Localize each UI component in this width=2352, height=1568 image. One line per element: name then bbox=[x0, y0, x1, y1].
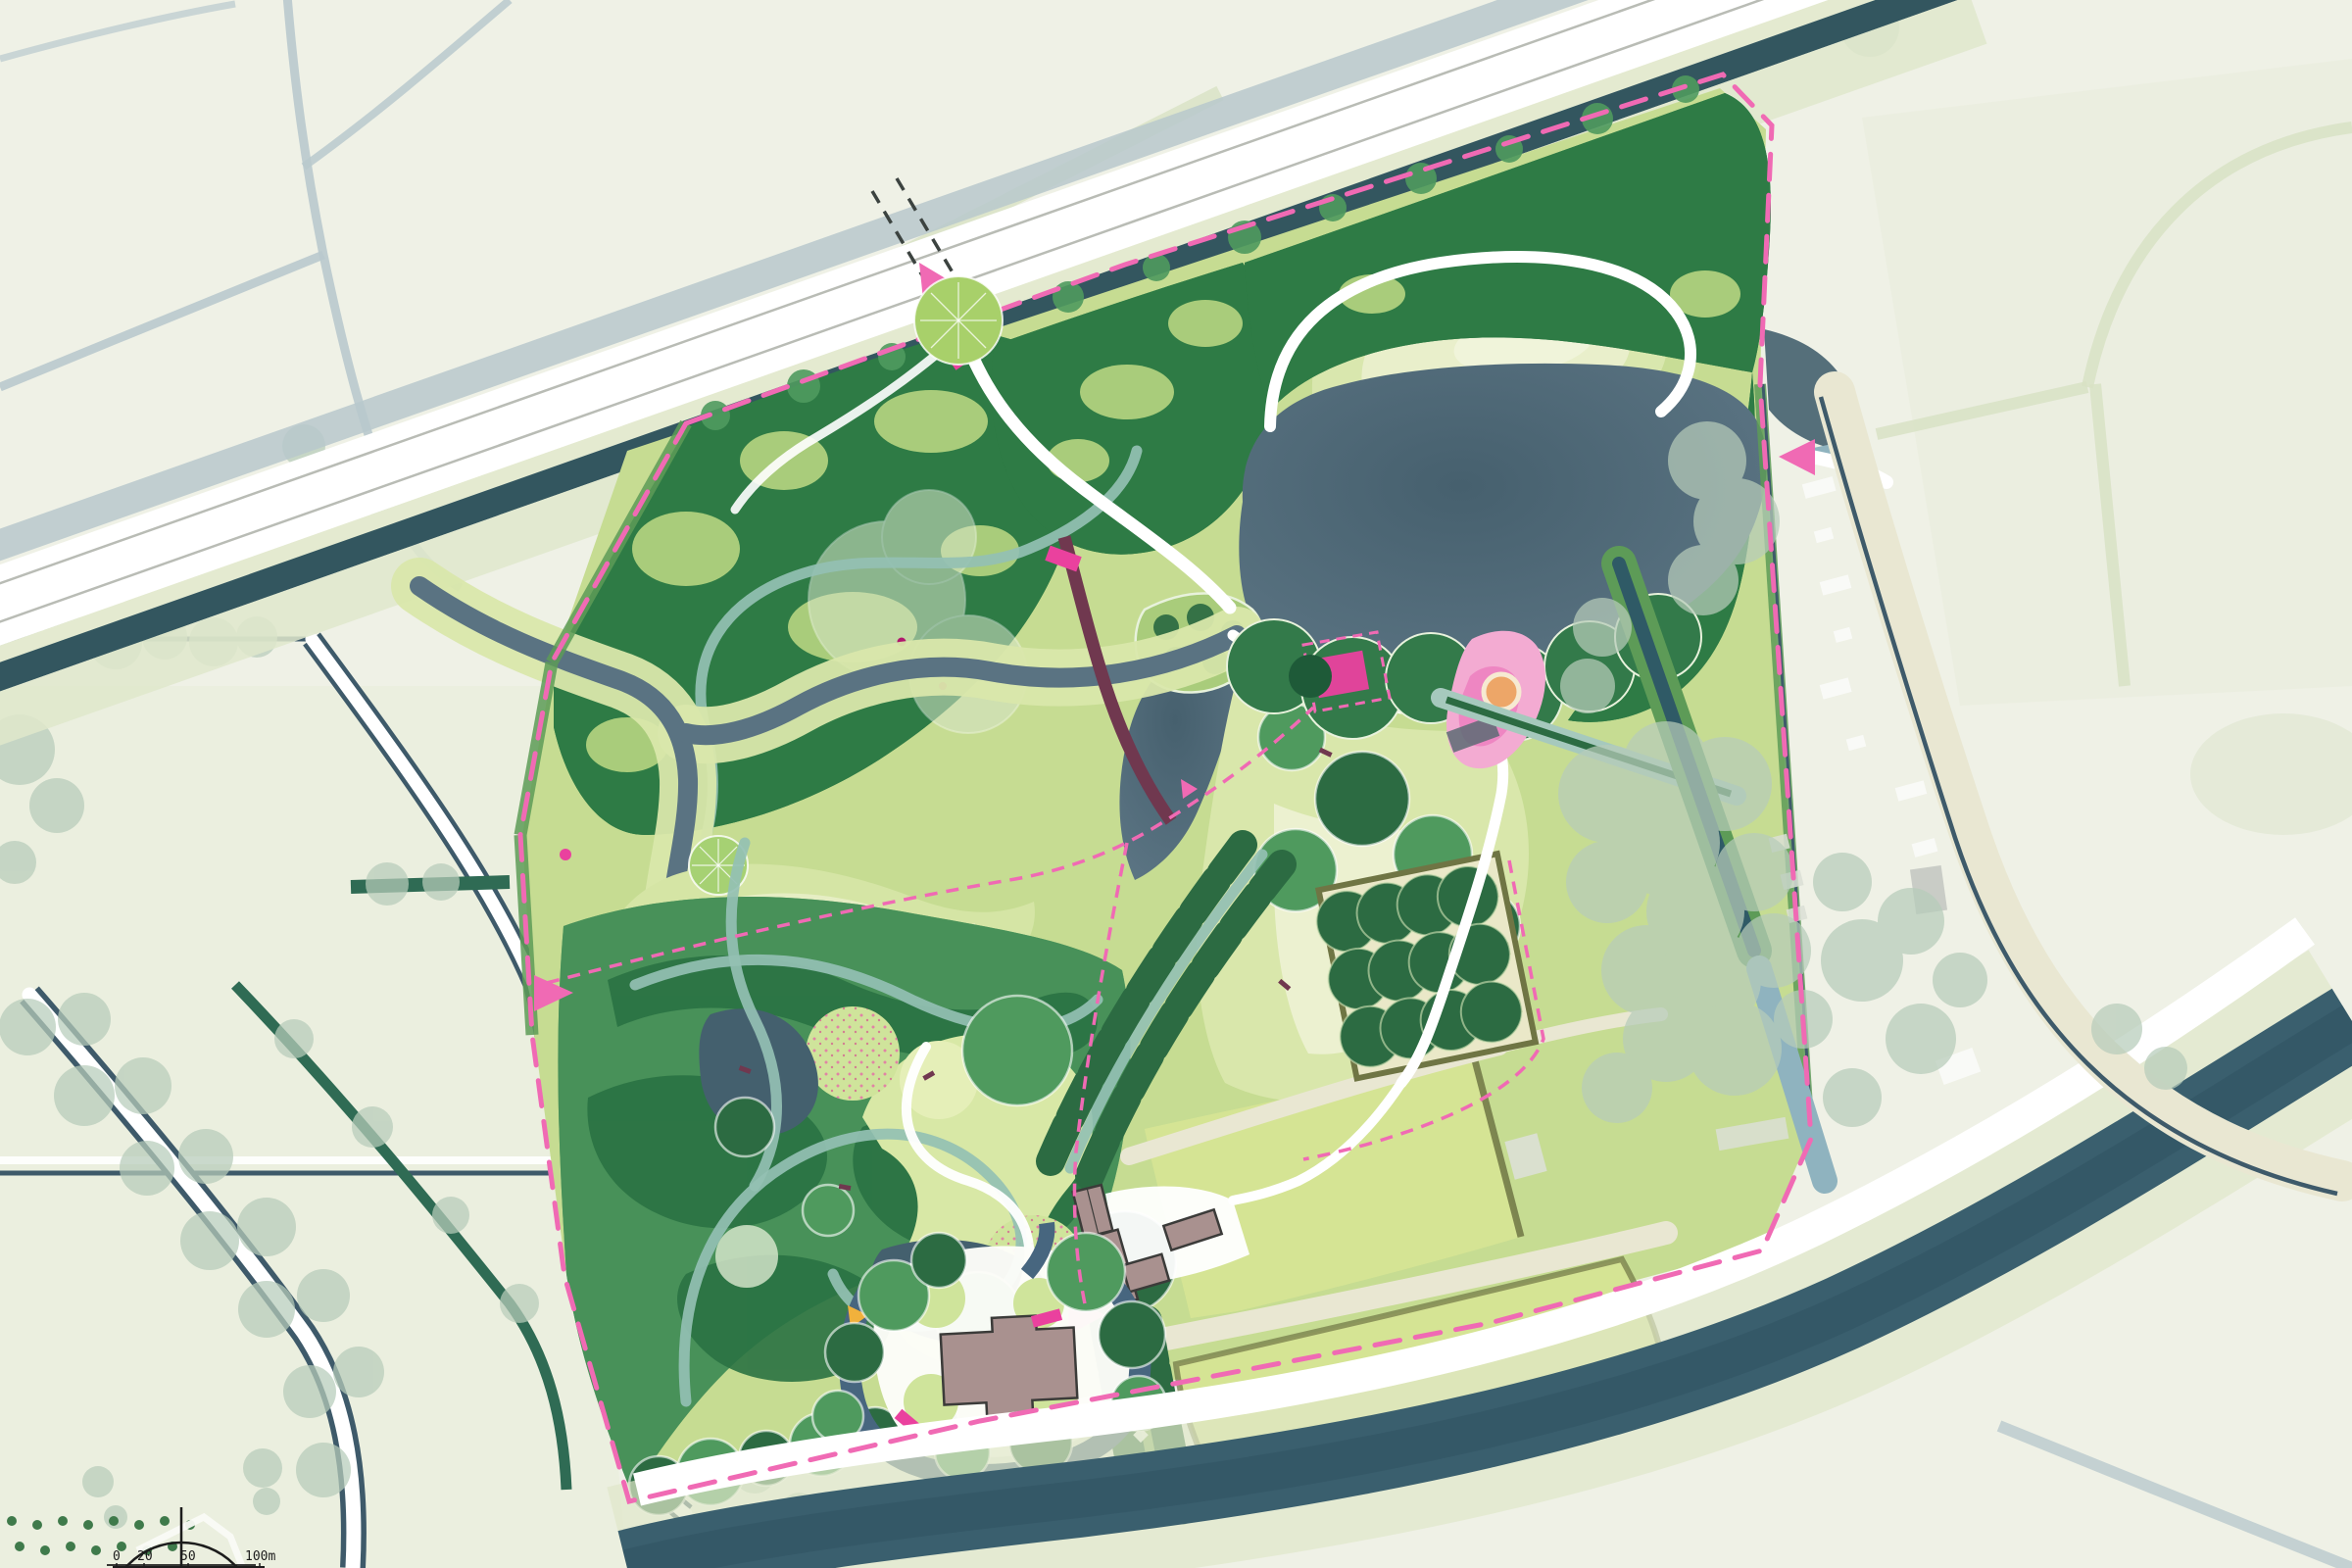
scale-label-0: 0 bbox=[113, 1549, 121, 1564]
landscape-masterplan: 0 20 50 100m bbox=[0, 0, 2352, 1568]
scale-label-100m: 100m bbox=[245, 1549, 275, 1564]
entrance-tree bbox=[914, 276, 1003, 365]
scale-label-50: 50 bbox=[180, 1549, 196, 1564]
scale-label-20: 20 bbox=[137, 1549, 153, 1564]
